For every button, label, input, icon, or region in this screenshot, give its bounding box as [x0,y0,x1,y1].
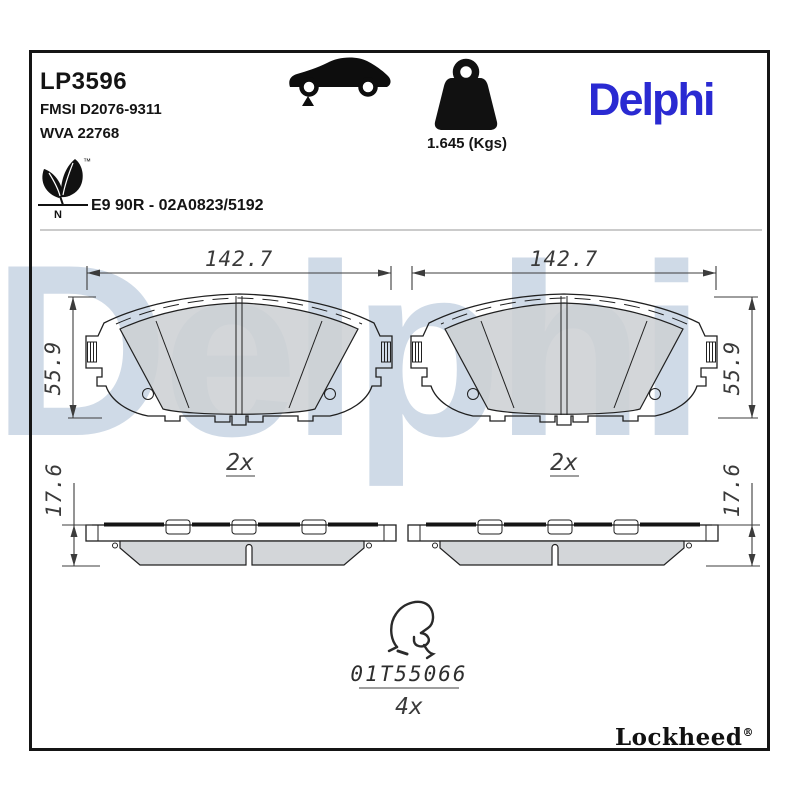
technical-drawing: 142.7 55.9 2x 142.7 55.9 2x 17.6 [0,0,800,800]
dim-thickness-left: 17.6 [42,463,66,518]
dim-width-right: 142.7 [530,247,598,271]
accessory-part-code: 01T55066 [350,662,467,686]
dim-height-left: 55.9 [41,341,65,396]
dim-height-right: 55.9 [720,341,744,396]
pad-front-left-view: 142.7 55.9 2x [41,247,392,476]
dim-width-left: 142.7 [205,247,273,271]
pad-side-right-view: 17.6 [408,463,760,566]
dim-thickness-right: 17.6 [720,463,744,518]
lockheed-wordmark: Lockheed [615,724,743,751]
qty-front-right: 2x [550,450,578,476]
qty-accessory: 4x [395,694,423,720]
accessory-label: 01T55066 4x [350,662,467,720]
pad-side-left-view: 17.6 [42,463,396,566]
registered-symbol: ® [743,726,755,739]
pad-front-right-view: 142.7 55.9 2x [411,247,758,476]
qty-front-left: 2x [226,450,254,476]
spring-clip-icon [389,602,433,658]
lockheed-logo: Lockheed® [615,724,754,751]
